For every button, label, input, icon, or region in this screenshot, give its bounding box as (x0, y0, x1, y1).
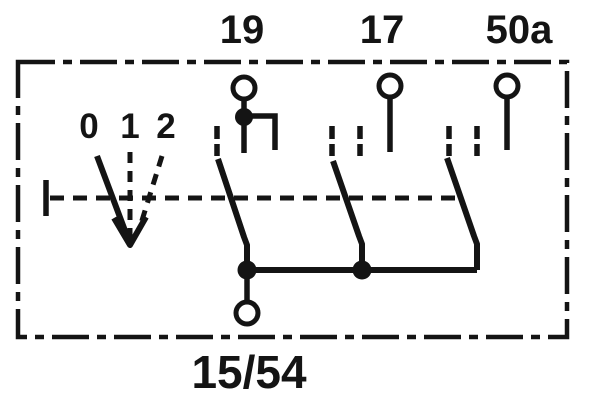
position-label-0: 0 (79, 107, 98, 146)
switch-lever-2 (333, 161, 362, 270)
terminal-label-50a: 50a (486, 8, 553, 52)
switch-lever-1 (218, 159, 247, 270)
position-label-1: 1 (120, 107, 139, 146)
ignition-switch-schematic: 19 17 50a 0 1 2 (0, 0, 600, 400)
terminal-17-circle (379, 75, 401, 97)
terminal-19-circle (233, 77, 255, 99)
terminal-label-17: 17 (360, 8, 405, 52)
switch-lever-3 (447, 158, 477, 270)
terminal-19-bridge-contact (248, 116, 275, 150)
terminal-1554-circle (236, 302, 258, 324)
terminal-label-19: 19 (220, 8, 265, 52)
schematic-canvas: 19 17 50a 0 1 2 (0, 0, 600, 400)
terminal-50a-circle (496, 75, 518, 97)
terminal-label-1554: 15/54 (191, 346, 307, 398)
selector-pos2-line (139, 156, 162, 230)
bus-junction-dot-2 (353, 261, 372, 280)
position-label-2: 2 (156, 107, 175, 146)
bus-junction-dot-1 (238, 261, 257, 280)
